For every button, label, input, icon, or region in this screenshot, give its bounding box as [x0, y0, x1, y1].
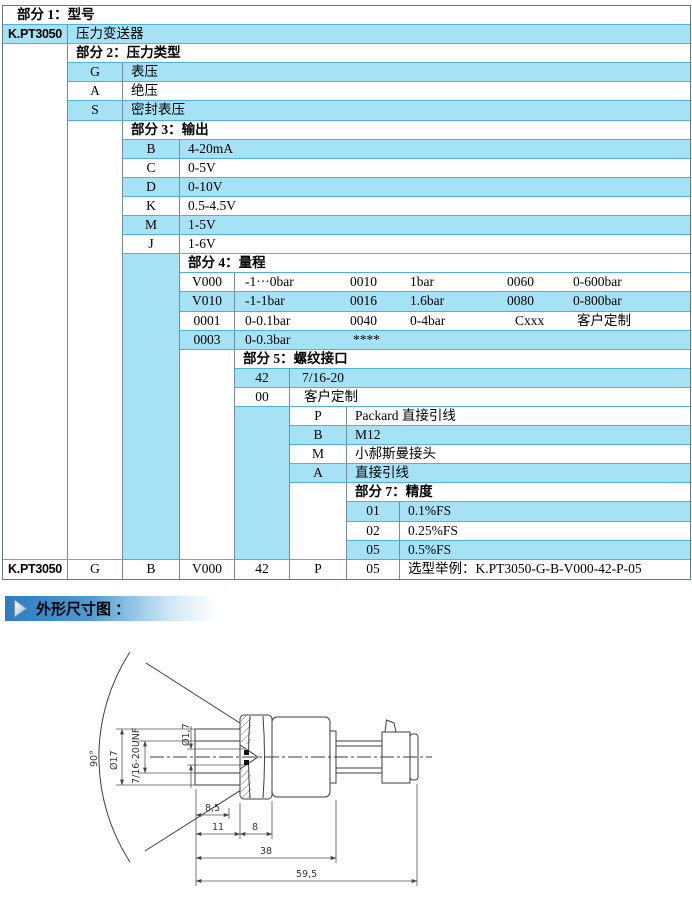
description-cell: 密封表压 — [123, 101, 690, 120]
code-cell: A — [68, 82, 123, 101]
code-cell: G — [68, 63, 123, 82]
range-text: 0-800bar — [573, 292, 622, 310]
code-cell: J — [123, 235, 180, 254]
description-cell: 压力变送器 — [68, 25, 690, 44]
dim-label-8: 8 — [252, 822, 258, 833]
range-text: 1bar — [410, 273, 434, 291]
description-cell: 1-5V — [180, 216, 690, 235]
dim-label-angle: 90° — [89, 750, 100, 767]
code-cell: V000 — [180, 273, 235, 292]
spacer-cell — [68, 121, 123, 560]
description-cell: 表压 — [123, 63, 690, 82]
spacer-cell — [123, 254, 180, 560]
code-cell: 05 — [347, 541, 400, 560]
range-text: 0080 — [507, 292, 534, 310]
model-cell: K.PT3050 — [3, 25, 68, 44]
description-cell: 客户定制 — [290, 388, 690, 407]
section-header-cell: 部分 4：量程 — [180, 254, 690, 273]
spacer-cell — [180, 350, 235, 560]
code-cell: A — [290, 464, 347, 483]
code-cell: D — [123, 178, 180, 197]
description-cell: 0-0.3bar**** — [235, 331, 690, 350]
range-text: 客户定制 — [577, 312, 631, 330]
code-cell: 42 — [235, 369, 290, 388]
dim-label-11: 11 — [212, 822, 224, 833]
datasheet-page: 部分 1：型号K.PT3050压力变送器部分 2：压力类型G表压A绝压S密封表压… — [0, 0, 692, 900]
description-cell: 7/16-20 — [290, 369, 690, 388]
range-text: 0010 — [350, 273, 377, 291]
description-cell: 0.25%FS — [400, 522, 690, 541]
code-cell: S — [68, 101, 123, 120]
spacer-cell — [290, 483, 347, 559]
section-header-cell: 部分 3：输出 — [123, 121, 690, 140]
range-text: 0-600bar — [573, 273, 622, 291]
range-text: 1.6bar — [410, 292, 444, 310]
range-text: 0-4bar — [410, 312, 445, 330]
play-triangle-icon — [13, 599, 28, 618]
code-cell: B — [123, 560, 180, 579]
description-cell: 0.1%FS — [400, 502, 690, 521]
code-cell: P — [290, 407, 347, 426]
code-cell: K — [123, 197, 180, 216]
section-header-cell: 部分 1：型号 — [3, 6, 690, 25]
model-cell: K.PT3050 — [3, 560, 68, 579]
range-text: 0060 — [507, 273, 534, 291]
code-cell: B — [290, 426, 347, 445]
description-cell: 选型举例：K.PT3050-G-B-V000-42-P-05 — [400, 560, 690, 579]
dim-label-38: 38 — [260, 846, 272, 857]
section-header-cell: 部分 5：螺纹接口 — [235, 350, 690, 369]
description-cell: 小郝斯曼接头 — [347, 445, 690, 464]
code-cell: 00 — [235, 388, 290, 407]
code-cell: 0003 — [180, 331, 235, 350]
ordering-table: 部分 1：型号K.PT3050压力变送器部分 2：压力类型G表压A绝压S密封表压… — [2, 5, 691, 580]
section-header-cell: 部分 7：精度 — [347, 483, 690, 502]
spacer-cell — [3, 44, 68, 560]
description-cell: 4-20mA — [180, 140, 690, 159]
dim-label-thread: 7/16-20UNF — [131, 728, 142, 784]
range-text: 0016 — [350, 292, 377, 310]
code-cell: 02 — [347, 522, 400, 541]
range-text: **** — [353, 331, 380, 349]
section-header-cell: 部分 2：压力类型 — [68, 44, 690, 63]
description-cell: 绝压 — [123, 82, 690, 101]
description-cell: -1-1bar00161.6bar00800-800bar — [235, 292, 690, 311]
dimension-drawing: 90° Ø17 7/16-20UNF Ø1,7 8,5 11 8 38 59,5 — [0, 640, 470, 900]
description-cell: M12 — [347, 426, 690, 445]
section-banner: 外形尺寸图 ： — [5, 596, 216, 621]
range-text: 0-0.3bar — [245, 331, 290, 349]
description-cell: 0-5V — [180, 159, 690, 178]
dim-label-bore: Ø1,7 — [181, 723, 192, 746]
description-cell: 0-0.1bar00400-4barCxxx客户定制 — [235, 312, 690, 331]
code-cell: V010 — [180, 292, 235, 311]
range-text: 0040 — [350, 312, 377, 330]
description-cell: -1···0bar00101bar00600-600bar — [235, 273, 690, 292]
code-cell: B — [123, 140, 180, 159]
spacer-cell — [235, 407, 290, 560]
code-cell: 42 — [235, 560, 290, 579]
code-cell: 01 — [347, 502, 400, 521]
description-cell: Packard 直接引线 — [347, 407, 690, 426]
range-text: -1-1bar — [245, 292, 285, 310]
description-cell: 0-10V — [180, 178, 690, 197]
code-cell: C — [123, 159, 180, 178]
code-cell: V000 — [180, 560, 235, 579]
dim-label-85: 8,5 — [205, 803, 220, 814]
range-text: -1···0bar — [245, 273, 294, 291]
description-cell: 0.5%FS — [400, 541, 690, 560]
range-text: 0-0.1bar — [245, 312, 290, 330]
dim-label-od: Ø17 — [109, 750, 120, 770]
code-cell: G — [68, 560, 123, 579]
code-cell: M — [123, 216, 180, 235]
code-cell: 0001 — [180, 312, 235, 331]
banner-title: 外形尺寸图 ： — [36, 598, 130, 619]
code-cell: M — [290, 445, 347, 464]
dim-label-595: 59,5 — [296, 869, 317, 880]
code-cell: P — [290, 560, 347, 579]
description-cell: 直接引线 — [347, 464, 690, 483]
description-cell: 1-6V — [180, 235, 690, 254]
code-cell: 05 — [347, 560, 400, 579]
sensor-outline — [150, 715, 432, 799]
range-text: Cxxx — [515, 312, 544, 330]
description-cell: 0.5-4.5V — [180, 197, 690, 216]
